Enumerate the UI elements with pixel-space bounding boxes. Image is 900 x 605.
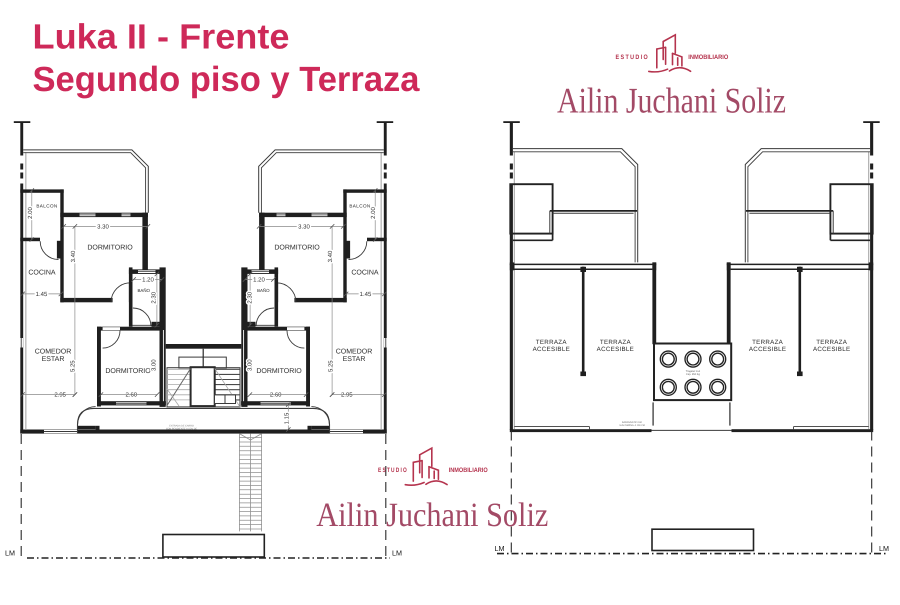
svg-text:5.25: 5.25	[328, 360, 335, 372]
svg-text:BALCON: BALCON	[36, 203, 57, 208]
svg-text:DORMITORIO: DORMITORIO	[105, 368, 151, 375]
svg-text:3.30: 3.30	[298, 224, 310, 231]
svg-text:BALCON: BALCON	[349, 203, 370, 208]
svg-text:ESTUDIO: ESTUDIO	[378, 467, 408, 474]
svg-text:2.95: 2.95	[341, 392, 353, 399]
svg-text:TERRAZA: TERRAZA	[752, 339, 784, 346]
svg-text:1.45: 1.45	[360, 291, 372, 298]
svg-text:DORMITORIO: DORMITORIO	[274, 244, 320, 251]
svg-text:ESTAR: ESTAR	[343, 356, 366, 363]
svg-text:1.20: 1.20	[253, 277, 265, 284]
svg-text:LM: LM	[5, 549, 15, 558]
svg-text:DORMITORIO: DORMITORIO	[256, 368, 302, 375]
svg-text:1.15: 1.15	[283, 412, 290, 424]
svg-text:ACCESIBLE: ACCESIBLE	[533, 346, 570, 353]
svg-text:COMEDOR: COMEDOR	[336, 349, 373, 356]
svg-text:COCINA: COCINA	[351, 269, 379, 276]
svg-text:Luka II - Frente: Luka II - Frente	[33, 18, 290, 57]
svg-text:Segundo piso y Terraza: Segundo piso y Terraza	[33, 60, 421, 99]
svg-text:2.30: 2.30	[247, 291, 254, 303]
svg-text:CON PENDIENTE A 15% DE: CON PENDIENTE A 15% DE	[166, 427, 197, 430]
svg-text:1.45: 1.45	[36, 291, 48, 298]
svg-text:TERRAZA: TERRAZA	[600, 339, 632, 346]
svg-text:Cap. 350 Kg: Cap. 350 Kg	[686, 373, 701, 376]
svg-text:5.25: 5.25	[69, 360, 76, 372]
svg-text:1.20: 1.20	[142, 277, 154, 284]
svg-text:ESTAR: ESTAR	[42, 356, 65, 363]
svg-text:3.40: 3.40	[327, 250, 334, 262]
svg-text:BAÑO: BAÑO	[257, 288, 270, 293]
svg-text:INMOBILIARIO: INMOBILIARIO	[688, 54, 728, 61]
svg-text:ESTUDIO: ESTUDIO	[616, 54, 650, 61]
svg-text:LM: LM	[392, 549, 402, 558]
svg-text:Ailin Juchani Soliz: Ailin Juchani Soliz	[557, 80, 786, 120]
svg-text:LM: LM	[495, 544, 505, 553]
svg-text:BAÑO: BAÑO	[137, 288, 150, 293]
svg-text:INMOBILIARIO: INMOBILIARIO	[449, 467, 488, 474]
svg-text:SUS DIMENS. A 100 CM: SUS DIMENS. A 100 CM	[619, 424, 645, 427]
svg-text:ACCESIBLE: ACCESIBLE	[813, 346, 850, 353]
svg-text:TERRAZA: TERRAZA	[536, 339, 568, 346]
svg-text:ACCESIBLE: ACCESIBLE	[749, 346, 786, 353]
svg-text:2.60: 2.60	[125, 392, 137, 399]
svg-text:2.00: 2.00	[27, 207, 34, 219]
svg-text:2.60: 2.60	[270, 392, 282, 399]
svg-text:3.00: 3.00	[150, 359, 157, 371]
svg-text:3.40: 3.40	[70, 250, 77, 262]
svg-text:DORMITORIO: DORMITORIO	[87, 244, 133, 251]
svg-text:2.30: 2.30	[151, 291, 158, 303]
svg-text:BARANDA DE 0.90: BARANDA DE 0.90	[622, 421, 643, 424]
svg-text:2.00: 2.00	[370, 207, 377, 219]
svg-text:2.95: 2.95	[54, 392, 66, 399]
svg-text:Ailin Juchani Soliz: Ailin Juchani Soliz	[316, 497, 548, 534]
svg-text:LM: LM	[879, 544, 889, 553]
svg-text:COCINA: COCINA	[28, 269, 56, 276]
svg-text:3.00: 3.00	[247, 359, 254, 371]
svg-text:TERRAZA: TERRAZA	[816, 339, 848, 346]
svg-text:COMEDOR: COMEDOR	[35, 349, 72, 356]
svg-text:3.30: 3.30	[97, 224, 109, 231]
svg-text:ACCESIBLE: ACCESIBLE	[597, 346, 634, 353]
